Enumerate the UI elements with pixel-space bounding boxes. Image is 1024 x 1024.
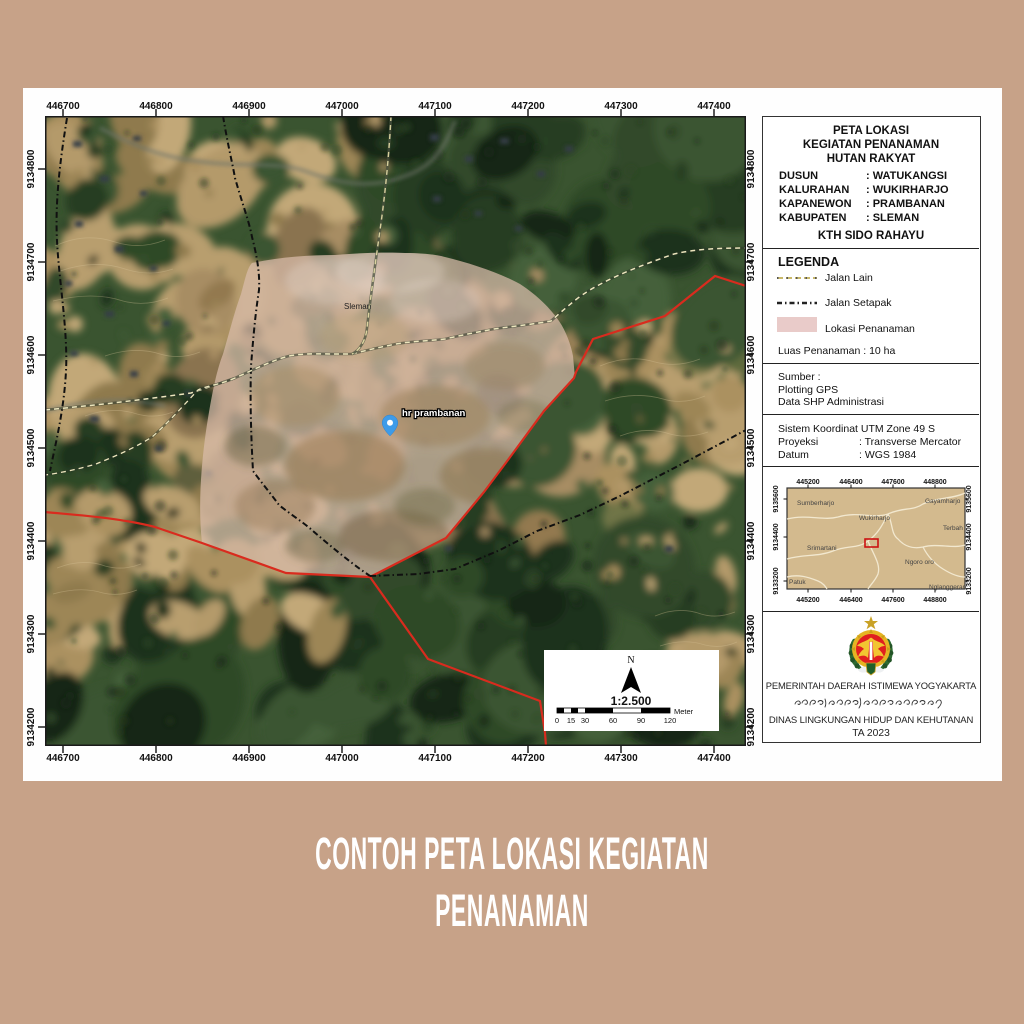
- svg-text:448800: 448800: [923, 597, 946, 604]
- svg-text:447600: 447600: [881, 597, 904, 604]
- svg-text:447200: 447200: [511, 101, 545, 112]
- svg-text:447300: 447300: [604, 753, 638, 764]
- svg-text:447400: 447400: [697, 101, 731, 112]
- svg-text:446700: 446700: [46, 753, 80, 764]
- svg-text:9134200: 9134200: [26, 707, 37, 746]
- svg-text:446400: 446400: [839, 597, 862, 604]
- svg-text:9134800: 9134800: [26, 149, 37, 188]
- svg-text:445200: 445200: [796, 597, 819, 604]
- svg-text:447000: 447000: [325, 753, 359, 764]
- svg-text:Gayamharjo: Gayamharjo: [925, 498, 961, 505]
- svg-text:Sumberharjo: Sumberharjo: [797, 500, 835, 507]
- svg-text:9134300: 9134300: [26, 614, 37, 653]
- svg-text:9135600: 9135600: [773, 485, 780, 512]
- svg-text:9134700: 9134700: [746, 242, 757, 281]
- svg-text:447200: 447200: [511, 753, 545, 764]
- svg-text:447100: 447100: [418, 753, 452, 764]
- svg-text:9134400: 9134400: [773, 523, 780, 550]
- svg-text:Patuk: Patuk: [789, 579, 806, 586]
- svg-text:446800: 446800: [139, 101, 173, 112]
- svg-text:9134400: 9134400: [746, 521, 757, 560]
- svg-text:9134500: 9134500: [746, 428, 757, 467]
- svg-text:446900: 446900: [232, 101, 266, 112]
- svg-text:9134700: 9134700: [26, 242, 37, 281]
- svg-text:447400: 447400: [697, 753, 731, 764]
- svg-text:Ngoro oro: Ngoro oro: [905, 559, 934, 566]
- svg-text:9133200: 9133200: [773, 567, 780, 594]
- svg-text:9134600: 9134600: [26, 335, 37, 374]
- svg-text:Wukirharjo: Wukirharjo: [859, 515, 890, 522]
- svg-text:447300: 447300: [604, 101, 638, 112]
- svg-text:9134400: 9134400: [26, 521, 37, 560]
- svg-text:446800: 446800: [139, 753, 173, 764]
- svg-text:Terbah: Terbah: [943, 525, 963, 532]
- svg-text:447100: 447100: [418, 101, 452, 112]
- svg-text:447000: 447000: [325, 101, 359, 112]
- svg-text:9134500: 9134500: [26, 428, 37, 467]
- svg-text:Nglanggeran: Nglanggeran: [929, 584, 967, 591]
- svg-text:9134300: 9134300: [746, 614, 757, 653]
- svg-text:9134200: 9134200: [746, 707, 757, 746]
- svg-text:446900: 446900: [232, 753, 266, 764]
- svg-text:446700: 446700: [46, 101, 80, 112]
- svg-text:Srimartani: Srimartani: [807, 545, 837, 552]
- svg-text:9134600: 9134600: [746, 335, 757, 374]
- svg-text:9134800: 9134800: [746, 149, 757, 188]
